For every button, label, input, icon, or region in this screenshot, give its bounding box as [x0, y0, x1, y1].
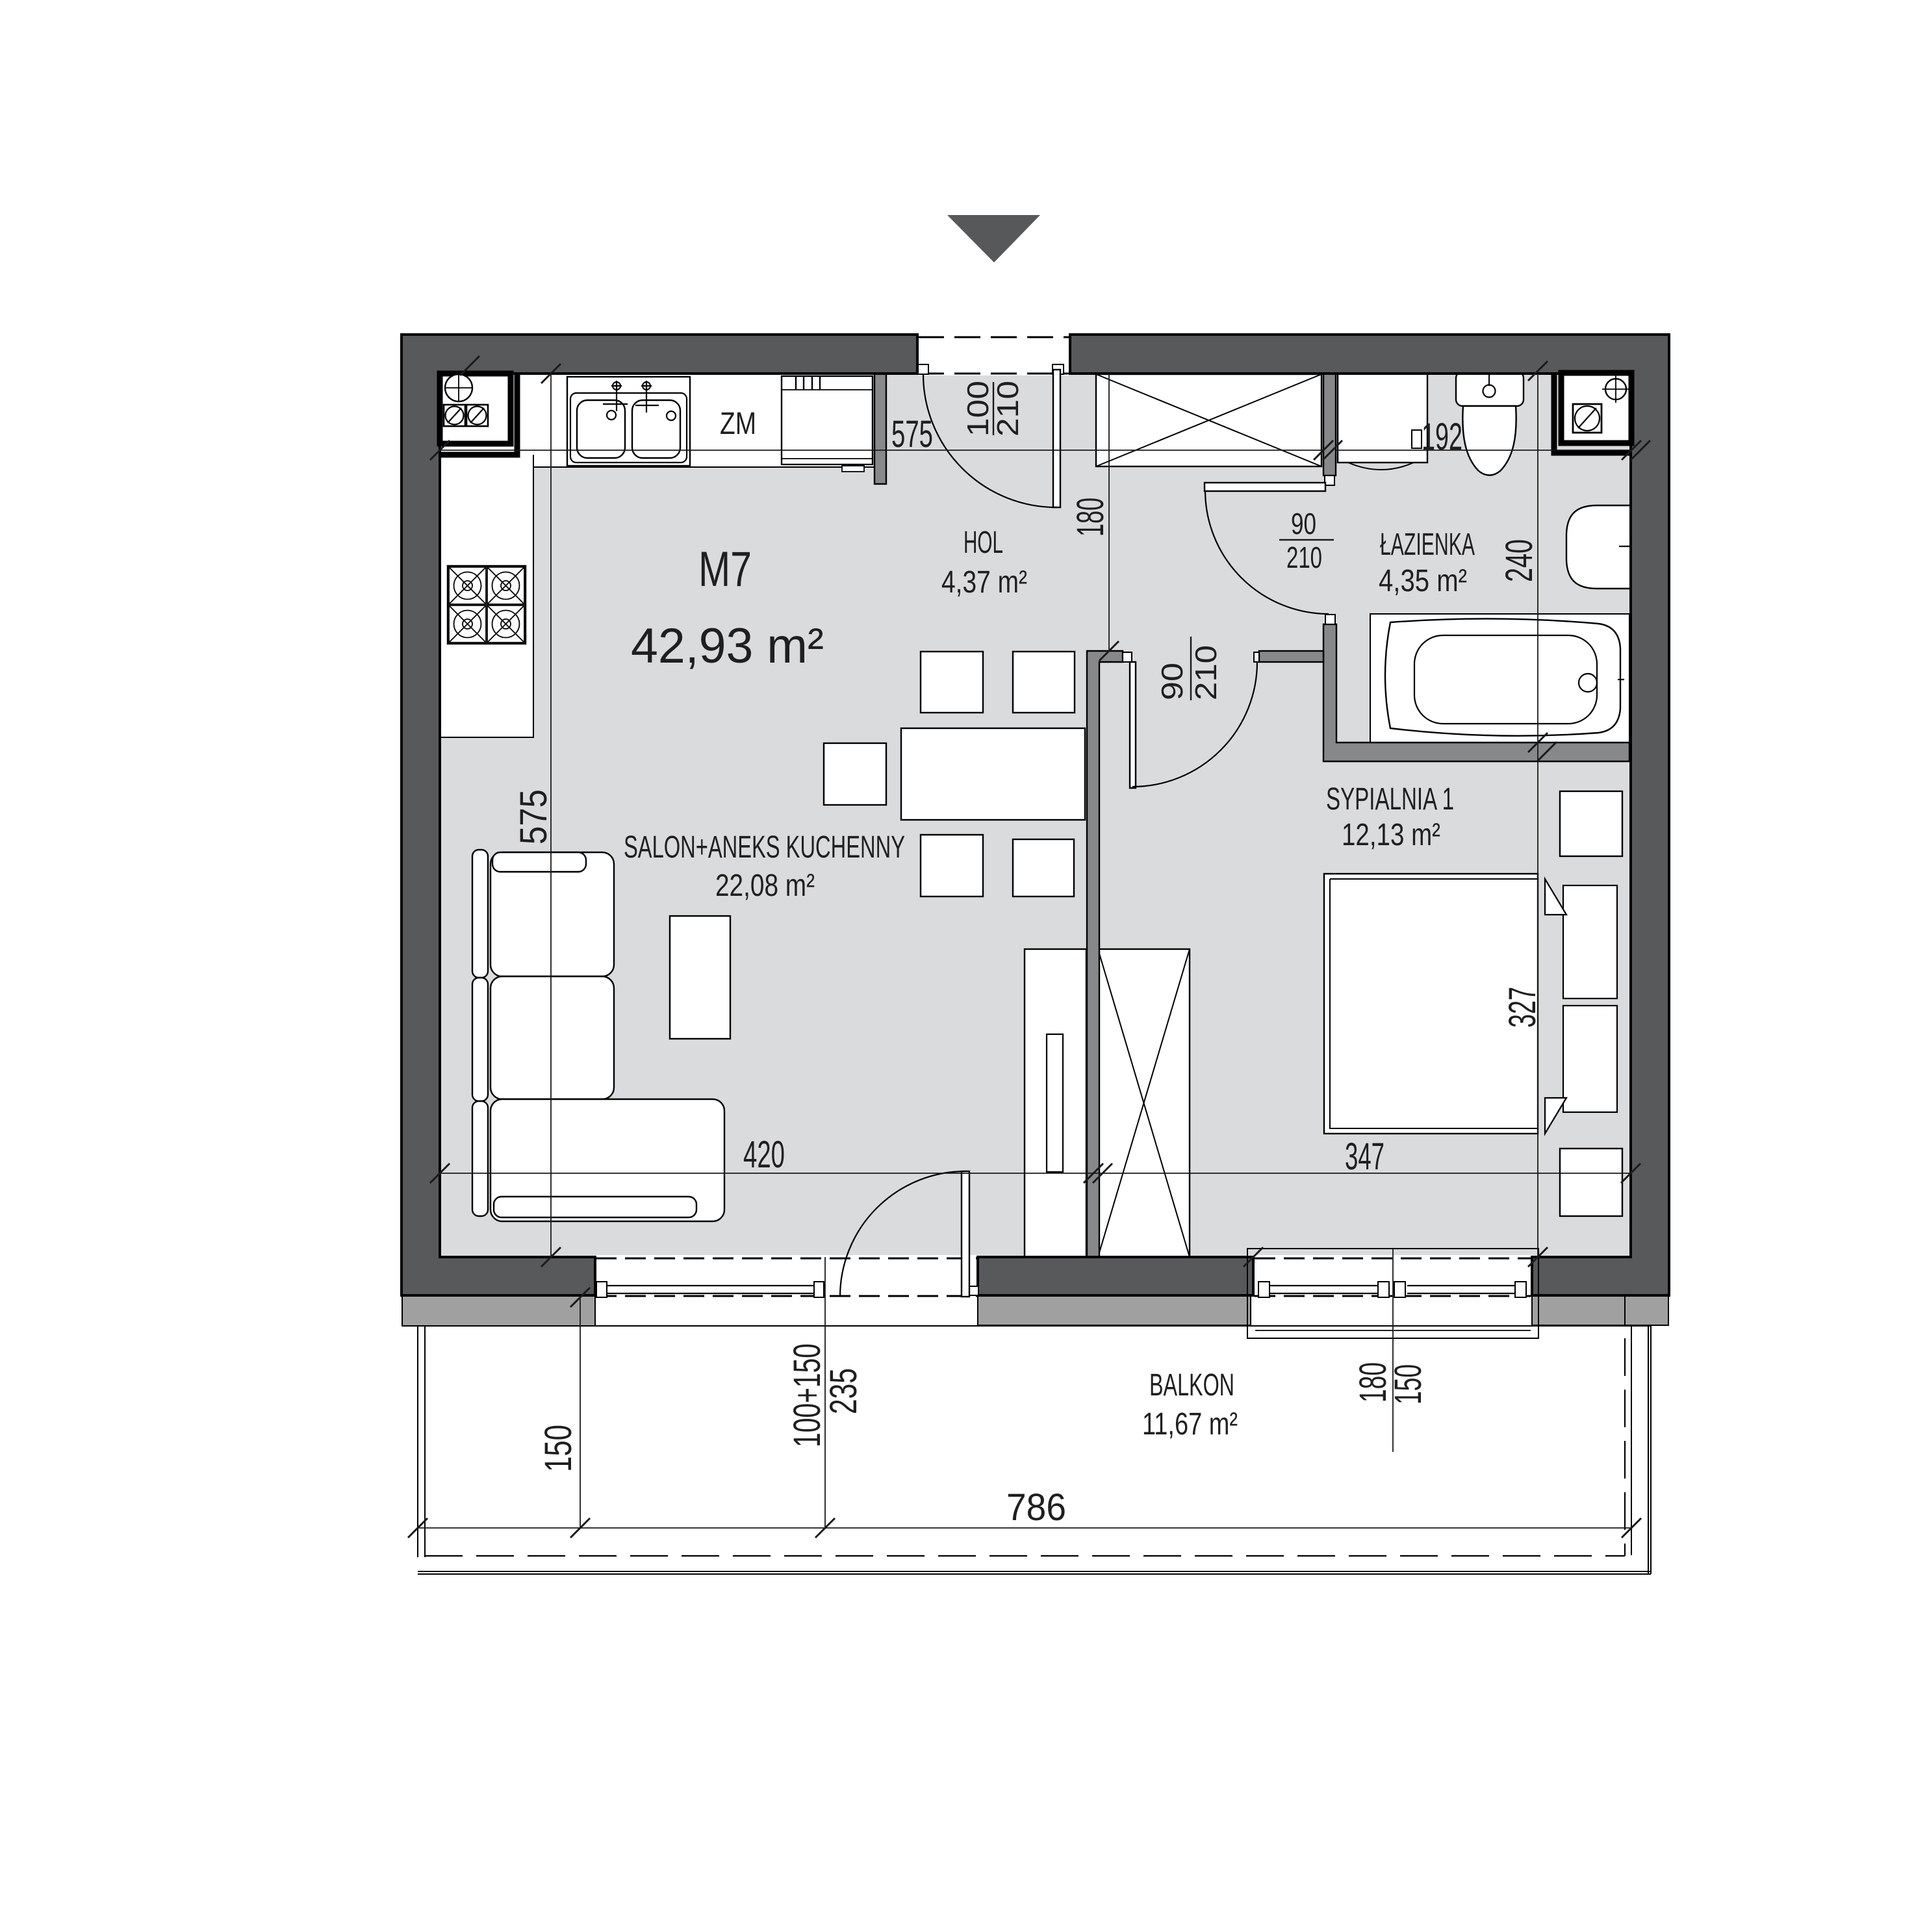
- svg-text:BALKON: BALKON: [1149, 1368, 1234, 1403]
- svg-text:100: 100: [961, 381, 995, 437]
- svg-text:192: 192: [1422, 416, 1462, 458]
- svg-text:SALON+ANEKS KUCHENNY: SALON+ANEKS KUCHENNY: [624, 830, 905, 865]
- svg-text:12,13 m²: 12,13 m²: [1342, 818, 1440, 852]
- svg-text:4,35 m²: 4,35 m²: [1379, 564, 1467, 598]
- svg-text:4,37 m²: 4,37 m²: [941, 565, 1027, 600]
- svg-text:180: 180: [1069, 498, 1112, 537]
- svg-text:210: 210: [1189, 645, 1223, 700]
- svg-text:90: 90: [1155, 663, 1189, 700]
- svg-text:150: 150: [537, 1425, 580, 1472]
- svg-text:240: 240: [1498, 539, 1540, 582]
- svg-text:22,08 m²: 22,08 m²: [715, 869, 815, 903]
- svg-text:235: 235: [823, 1368, 865, 1414]
- svg-text:575: 575: [513, 789, 555, 845]
- svg-text:786: 786: [1006, 1486, 1066, 1529]
- svg-text:SYPIALNIA 1: SYPIALNIA 1: [1326, 782, 1454, 817]
- svg-text:ŁAZIENKA: ŁAZIENKA: [1380, 527, 1475, 562]
- svg-text:42,93 m²: 42,93 m²: [631, 618, 824, 674]
- svg-text:M7: M7: [698, 542, 752, 597]
- svg-text:347: 347: [1345, 1136, 1384, 1178]
- svg-text:420: 420: [743, 1134, 785, 1176]
- svg-text:HOL: HOL: [963, 526, 1003, 560]
- svg-text:210: 210: [1286, 540, 1322, 574]
- svg-text:90: 90: [1291, 507, 1316, 540]
- svg-text:ZM: ZM: [720, 407, 756, 441]
- svg-text:11,67 m²: 11,67 m²: [1142, 1407, 1238, 1442]
- svg-text:575: 575: [891, 413, 933, 455]
- svg-text:150: 150: [1387, 1364, 1429, 1405]
- svg-text:210: 210: [991, 381, 1025, 437]
- svg-text:327: 327: [1501, 987, 1544, 1028]
